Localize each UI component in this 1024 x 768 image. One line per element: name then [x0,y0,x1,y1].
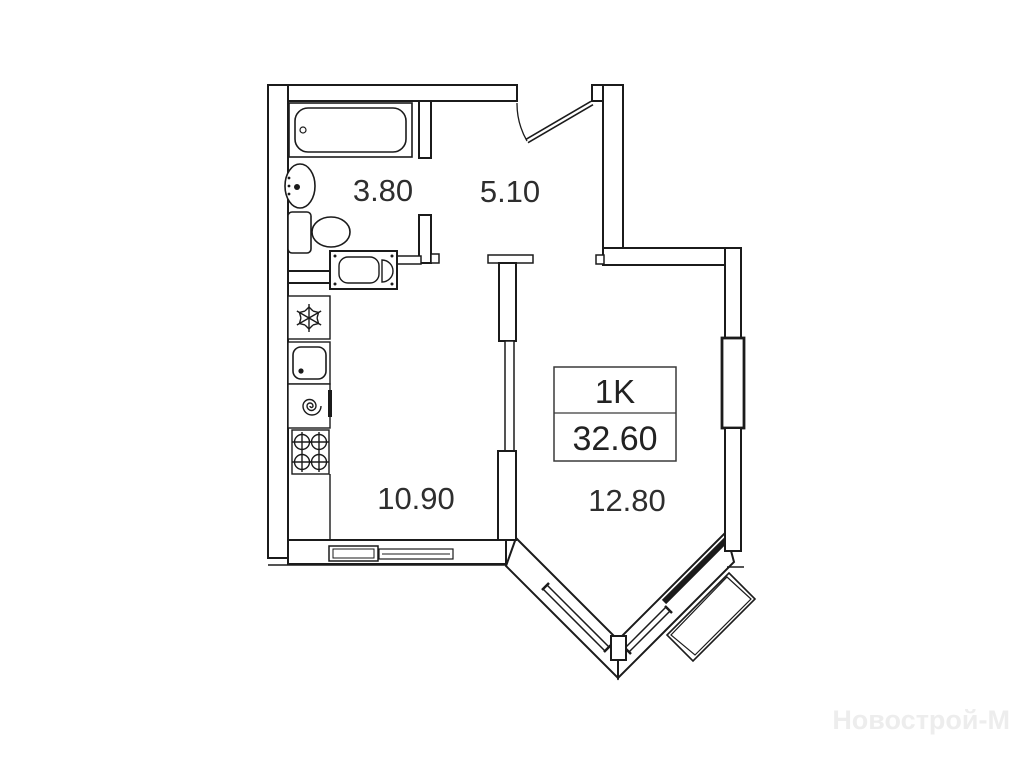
room-area-label: 12.80 [588,483,666,518]
bay-right-wall [618,532,734,678]
wall-bath-partition-top [419,101,431,158]
sink-tap-dot [288,193,291,196]
floor-plan-page: 3.80 5.10 10.90 12.80 1K 32.60 Новострой… [0,0,1024,768]
toilet-icon [312,217,350,247]
sink-tap-dot [288,185,291,188]
unit-info-box: 1K 32.60 [554,367,676,461]
wall-bath-bottom [288,271,332,283]
wall-kitchen-partition-thin [505,341,514,451]
wall-washer-niche [397,256,421,264]
wall-top [268,85,517,101]
wall-bath-door-nub [431,254,439,263]
watermark-logo: Новострой-М [832,705,1010,735]
water-heater-handle [328,390,332,417]
kitchen-appliances [288,296,332,540]
unit-type-label: 1K [595,373,635,410]
washer-screw [334,283,337,286]
washer-screw [391,255,394,258]
bathroom-area-label: 3.80 [353,173,413,208]
water-heater-box [288,384,330,428]
wall-kitchen-T-cap [488,255,533,263]
wall-room-entry-nub [596,255,604,264]
toilet-tank [288,212,311,253]
door-leaf [528,105,593,143]
kitchen-sink-icon [293,347,326,379]
wall-room-right-pier [722,338,744,428]
bathtub-inner [295,108,406,152]
bay-vertex-mullion [611,636,626,660]
wall-kitchen-partition-upper [499,263,516,341]
wall-hall-right [603,85,623,265]
sink-knob [294,184,300,190]
kitchen-sink-drain [298,368,303,373]
door-leaf [526,101,591,139]
sink-tap-dot [288,177,291,180]
wall-hall-bottom [603,248,727,265]
hallway-area-label: 5.10 [480,174,540,209]
window-inner-frame [333,549,374,558]
wall-kitchen-partition-lower [498,451,516,540]
wall-room-right-top [725,248,741,340]
wall-room-right-bottom [725,428,741,551]
washer-screw [334,255,337,258]
floor-plan-svg: 3.80 5.10 10.90 12.80 1K 32.60 Новострой… [0,0,1024,768]
unit-total-area-label: 32.60 [572,420,657,458]
kitchen-area-label: 10.90 [377,481,455,516]
washer-screw [391,283,394,286]
door-arc [517,103,527,141]
door-swing-icon [517,101,593,142]
wall-left [268,85,288,558]
washing-machine-drum [339,257,379,283]
